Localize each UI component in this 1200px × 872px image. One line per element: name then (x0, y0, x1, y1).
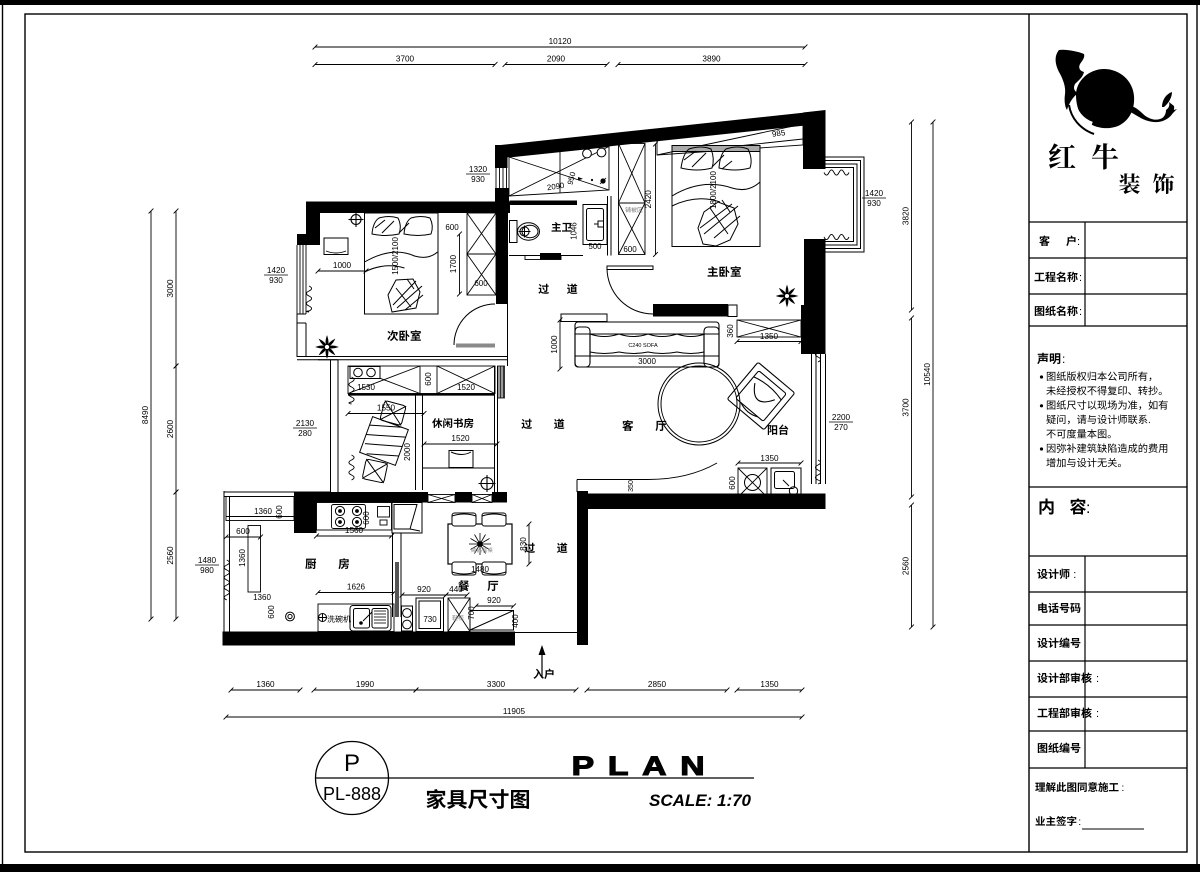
svg-text:1350: 1350 (760, 332, 779, 341)
svg-text:1480: 1480 (471, 565, 489, 574)
svg-text:280: 280 (298, 429, 312, 438)
svg-text:1420: 1420 (865, 189, 884, 198)
svg-text:1560: 1560 (345, 526, 364, 535)
svg-text:1420: 1420 (267, 266, 286, 275)
svg-text:930: 930 (269, 276, 283, 285)
svg-text:600: 600 (424, 372, 433, 386)
svg-text::: : (1079, 272, 1082, 284)
svg-text:3890: 3890 (702, 55, 721, 64)
svg-text::: : (1096, 708, 1099, 720)
svg-text::: : (1077, 236, 1080, 248)
svg-text:2090: 2090 (547, 55, 566, 64)
svg-text:P: P (344, 750, 360, 777)
svg-text:C240 SOFA: C240 SOFA (628, 343, 658, 349)
svg-text:1000: 1000 (333, 261, 352, 270)
svg-text:1626: 1626 (347, 583, 366, 592)
svg-text::: : (1078, 816, 1081, 828)
svg-text:930: 930 (867, 199, 881, 208)
svg-text:11905: 11905 (503, 707, 526, 716)
svg-text:400: 400 (511, 614, 520, 628)
svg-text:10540: 10540 (923, 363, 932, 386)
svg-text:1360: 1360 (254, 507, 272, 516)
svg-text:2420: 2420 (644, 190, 653, 209)
svg-text::: : (1086, 500, 1090, 517)
svg-text:2130: 2130 (296, 419, 315, 428)
svg-text:500: 500 (588, 242, 602, 251)
svg-text:600: 600 (474, 279, 488, 288)
svg-text:600: 600 (362, 511, 371, 525)
svg-text:1800/2100: 1800/2100 (709, 171, 718, 209)
svg-text:1350: 1350 (760, 680, 779, 689)
svg-text:2850: 2850 (648, 680, 667, 689)
svg-text:1550: 1550 (377, 404, 396, 413)
svg-text:1990: 1990 (356, 680, 375, 689)
svg-text:2200: 2200 (832, 413, 851, 422)
svg-text:PL-888: PL-888 (323, 784, 381, 804)
svg-text:600: 600 (275, 505, 284, 519)
svg-text:1046: 1046 (570, 222, 579, 239)
svg-text:3700: 3700 (396, 55, 415, 64)
svg-text:600: 600 (445, 223, 459, 232)
svg-text:1000: 1000 (550, 335, 559, 354)
svg-text:1520: 1520 (457, 383, 475, 392)
svg-text:700: 700 (467, 606, 476, 620)
svg-text:1500/2100: 1500/2100 (391, 237, 400, 275)
svg-text:3700: 3700 (902, 398, 911, 417)
svg-text:985: 985 (771, 128, 786, 139)
svg-text:920: 920 (417, 585, 431, 594)
svg-text:440: 440 (449, 585, 463, 594)
svg-text:10120: 10120 (549, 37, 572, 46)
svg-text:2600: 2600 (166, 419, 175, 438)
svg-text::: : (1121, 782, 1124, 794)
svg-text:600: 600 (728, 476, 737, 490)
svg-text:1520: 1520 (451, 434, 470, 443)
svg-text:600: 600 (623, 245, 637, 254)
svg-text:980: 980 (200, 566, 214, 575)
svg-text:8490: 8490 (141, 405, 150, 424)
svg-text:1320: 1320 (469, 165, 488, 174)
svg-text:3000: 3000 (638, 357, 656, 366)
svg-text:350: 350 (628, 480, 635, 492)
svg-text:2000: 2000 (403, 443, 412, 461)
svg-text:2560: 2560 (166, 546, 175, 565)
svg-text:1480: 1480 (198, 556, 217, 565)
svg-text:920: 920 (487, 596, 501, 605)
svg-text:3000: 3000 (166, 279, 175, 298)
svg-text:1360: 1360 (238, 549, 247, 567)
svg-text:360: 360 (726, 324, 735, 338)
svg-text::: : (1073, 569, 1076, 581)
svg-text:1360: 1360 (253, 593, 271, 602)
svg-text:1360: 1360 (256, 680, 275, 689)
svg-text:930: 930 (471, 175, 485, 184)
svg-text:600: 600 (267, 605, 276, 619)
svg-text:2560: 2560 (902, 556, 911, 575)
svg-text:.: . (1148, 415, 1151, 426)
svg-text:1700: 1700 (449, 254, 458, 273)
svg-text:3820: 3820 (902, 206, 911, 225)
svg-text:1530: 1530 (357, 383, 375, 392)
svg-text:PLAN: PLAN (572, 751, 719, 781)
svg-text::: : (1079, 306, 1082, 318)
svg-text:600: 600 (236, 527, 250, 536)
svg-text::: : (1062, 352, 1065, 366)
svg-text:SCALE: 1:70: SCALE: 1:70 (649, 791, 752, 810)
svg-text:1350: 1350 (760, 454, 779, 463)
svg-text:270: 270 (834, 423, 848, 432)
svg-text::: : (1096, 673, 1099, 685)
svg-text:3300: 3300 (487, 680, 506, 689)
svg-text:730: 730 (423, 615, 437, 624)
